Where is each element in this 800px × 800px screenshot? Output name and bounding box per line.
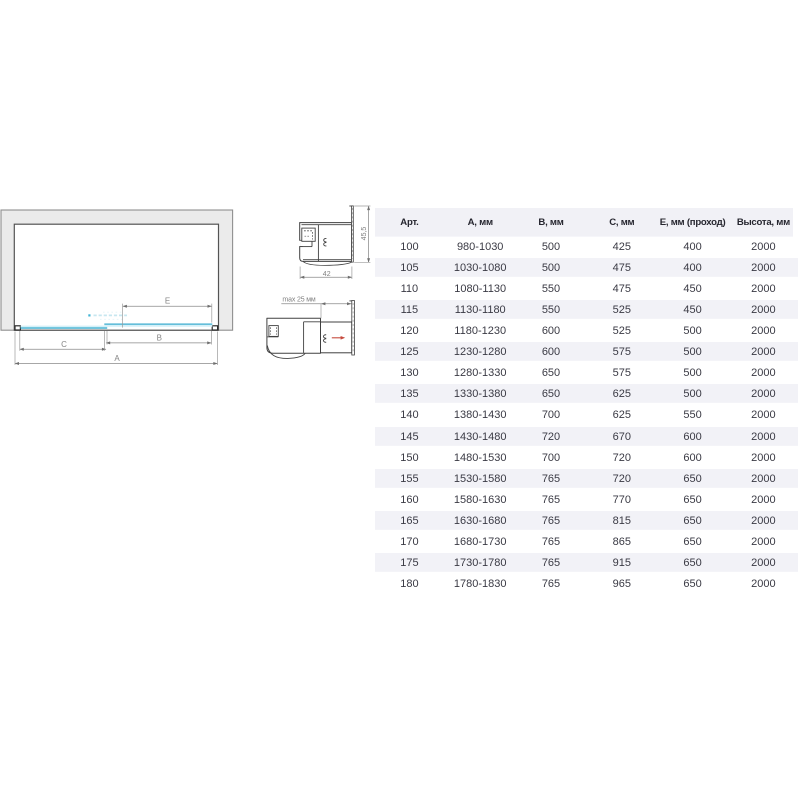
svg-text:C: C <box>61 340 67 349</box>
svg-text:45,5: 45,5 <box>361 227 368 241</box>
svg-text:max 25 мм: max 25 мм <box>282 296 316 303</box>
svg-text:B: B <box>157 333 162 342</box>
svg-text:E: E <box>165 297 170 306</box>
svg-text:A: A <box>114 354 120 363</box>
svg-text:42: 42 <box>323 271 331 278</box>
